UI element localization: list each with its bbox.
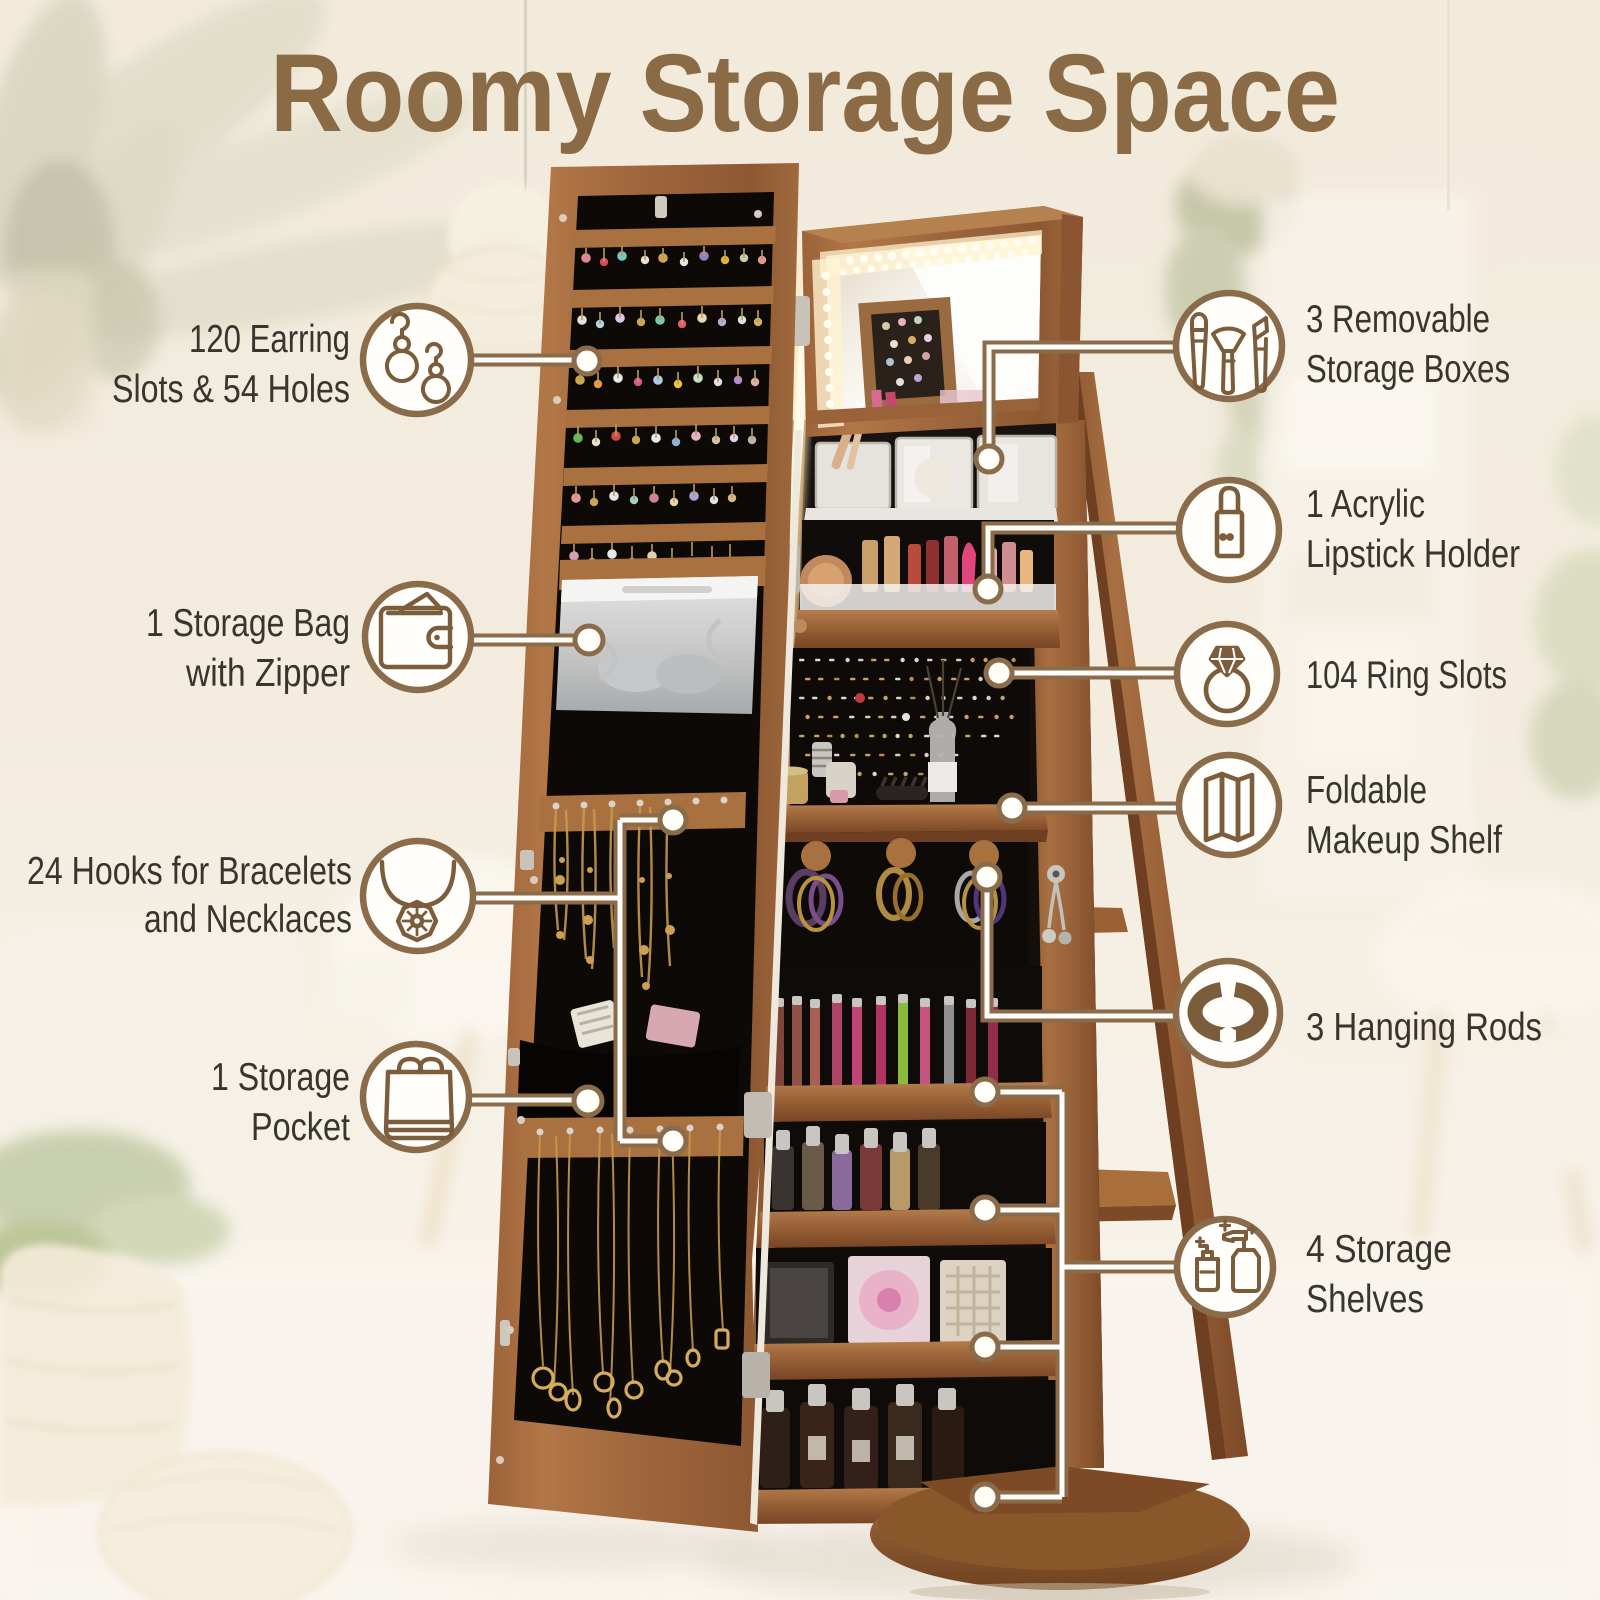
svg-text:3 Removable: 3 Removable [1306, 298, 1490, 341]
svg-text:Roomy Storage Space: Roomy Storage Space [270, 32, 1340, 155]
svg-text:1 Storage Bag: 1 Storage Bag [146, 602, 350, 645]
svg-text:Storage Boxes: Storage Boxes [1306, 348, 1510, 391]
svg-text:Slots & 54 Holes: Slots & 54 Holes [112, 368, 350, 411]
svg-text:120 Earring: 120 Earring [189, 318, 350, 361]
svg-text:Shelves: Shelves [1306, 1278, 1424, 1321]
svg-text:with Zipper: with Zipper [185, 652, 350, 695]
svg-text:Makeup Shelf: Makeup Shelf [1306, 819, 1502, 862]
svg-text:4 Storage: 4 Storage [1306, 1228, 1452, 1271]
svg-text:Pocket: Pocket [251, 1106, 350, 1149]
svg-text:and Necklaces: and Necklaces [144, 898, 352, 941]
svg-text:Lipstick Holder: Lipstick Holder [1306, 533, 1520, 576]
svg-text:3 Hanging Rods: 3 Hanging Rods [1306, 1006, 1542, 1049]
svg-text:1 Acrylic: 1 Acrylic [1306, 483, 1425, 526]
svg-text:24 Hooks for Bracelets: 24 Hooks for Bracelets [27, 850, 352, 893]
svg-text:Foldable: Foldable [1306, 769, 1427, 812]
svg-text:104 Ring Slots: 104 Ring Slots [1306, 654, 1507, 697]
svg-text:1 Storage: 1 Storage [211, 1056, 350, 1099]
